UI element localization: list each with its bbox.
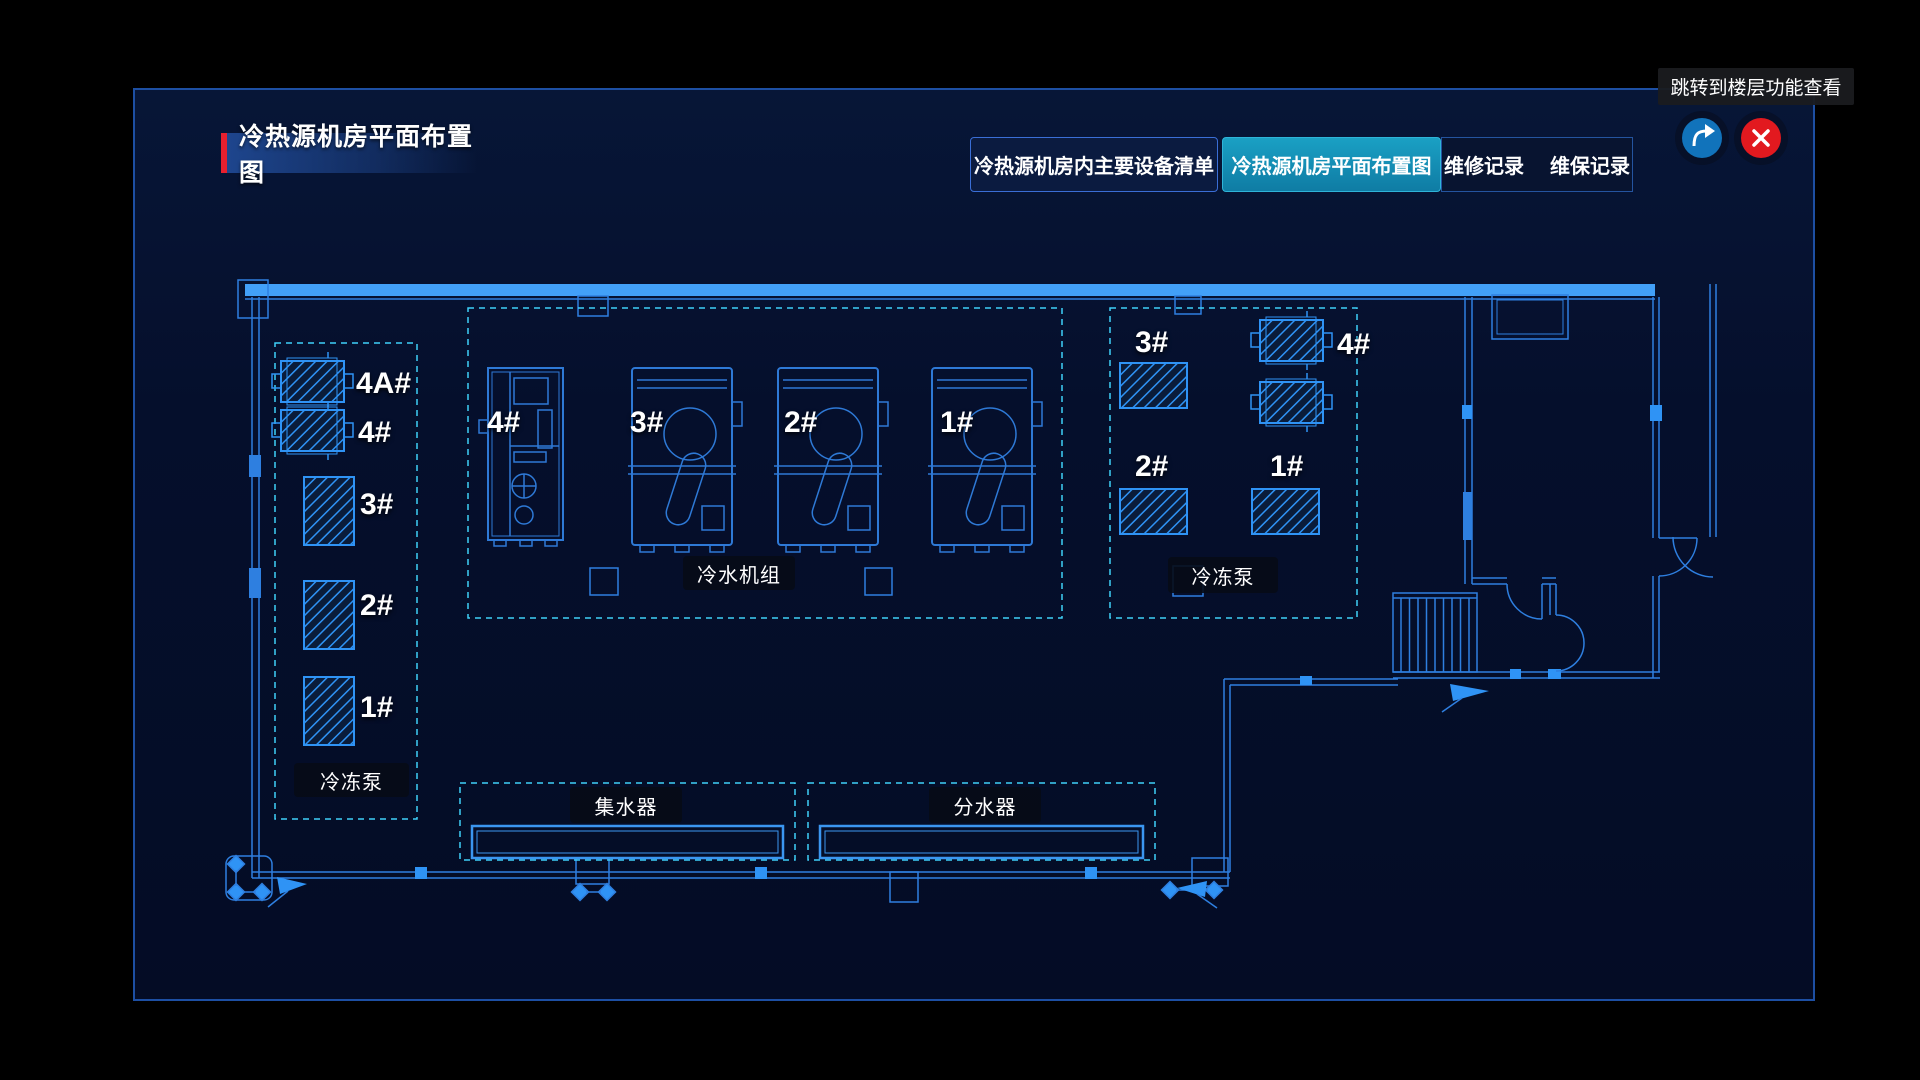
chiller-label-3: 3# [630, 408, 663, 438]
distributor-label: 分水器 [929, 787, 1041, 823]
tab-maintenance-records[interactable]: 维保记录 [1550, 150, 1630, 179]
tab-records-group: 维修记录 维保记录 [1441, 137, 1633, 192]
left-pump-label-3: 3# [360, 490, 393, 520]
tab-repair-records[interactable]: 维修记录 [1444, 150, 1524, 179]
page-title-text: 冷热源机房平面布置图 [227, 117, 477, 189]
share-button[interactable] [1682, 118, 1722, 158]
tab-equipment-list[interactable]: 冷热源机房内主要设备清单 [970, 137, 1218, 192]
right-pump-group-label: 冷冻泵 [1168, 557, 1278, 593]
close-x-icon [1741, 118, 1781, 158]
jump-to-floor-tooltip: 跳转到楼层功能查看 [1658, 68, 1854, 105]
share-arrow-icon [1682, 118, 1722, 158]
dashboard-stage: 冷热源机房平面布置图 冷热源机房内主要设备清单 冷热源机房平面布置图 维修记录 … [0, 0, 1920, 1080]
chiller-label-1: 1# [940, 408, 973, 438]
chiller-label-2: 2# [784, 408, 817, 438]
close-button[interactable] [1741, 118, 1781, 158]
page-title: 冷热源机房平面布置图 [227, 133, 477, 173]
chiller-group-label: 冷水机组 [683, 556, 795, 590]
left-pump-label-4a: 4A# [356, 369, 411, 399]
right-pump-label-4: 4# [1337, 330, 1370, 360]
collector-label: 集水器 [570, 787, 682, 823]
left-pump-label-2: 2# [360, 591, 393, 621]
right-pump-label-1: 1# [1270, 452, 1303, 482]
right-pump-label-3: 3# [1135, 328, 1168, 358]
chiller-label-4: 4# [487, 408, 520, 438]
tab-floor-layout[interactable]: 冷热源机房平面布置图 [1222, 137, 1441, 192]
tab-bar: 冷热源机房内主要设备清单 冷热源机房平面布置图 维修记录 维保记录 [970, 137, 1633, 192]
right-pump-label-2: 2# [1135, 452, 1168, 482]
main-panel [133, 88, 1815, 1001]
left-pump-group-label: 冷冻泵 [294, 763, 409, 797]
left-pump-label-4: 4# [358, 418, 391, 448]
left-pump-label-1: 1# [360, 693, 393, 723]
